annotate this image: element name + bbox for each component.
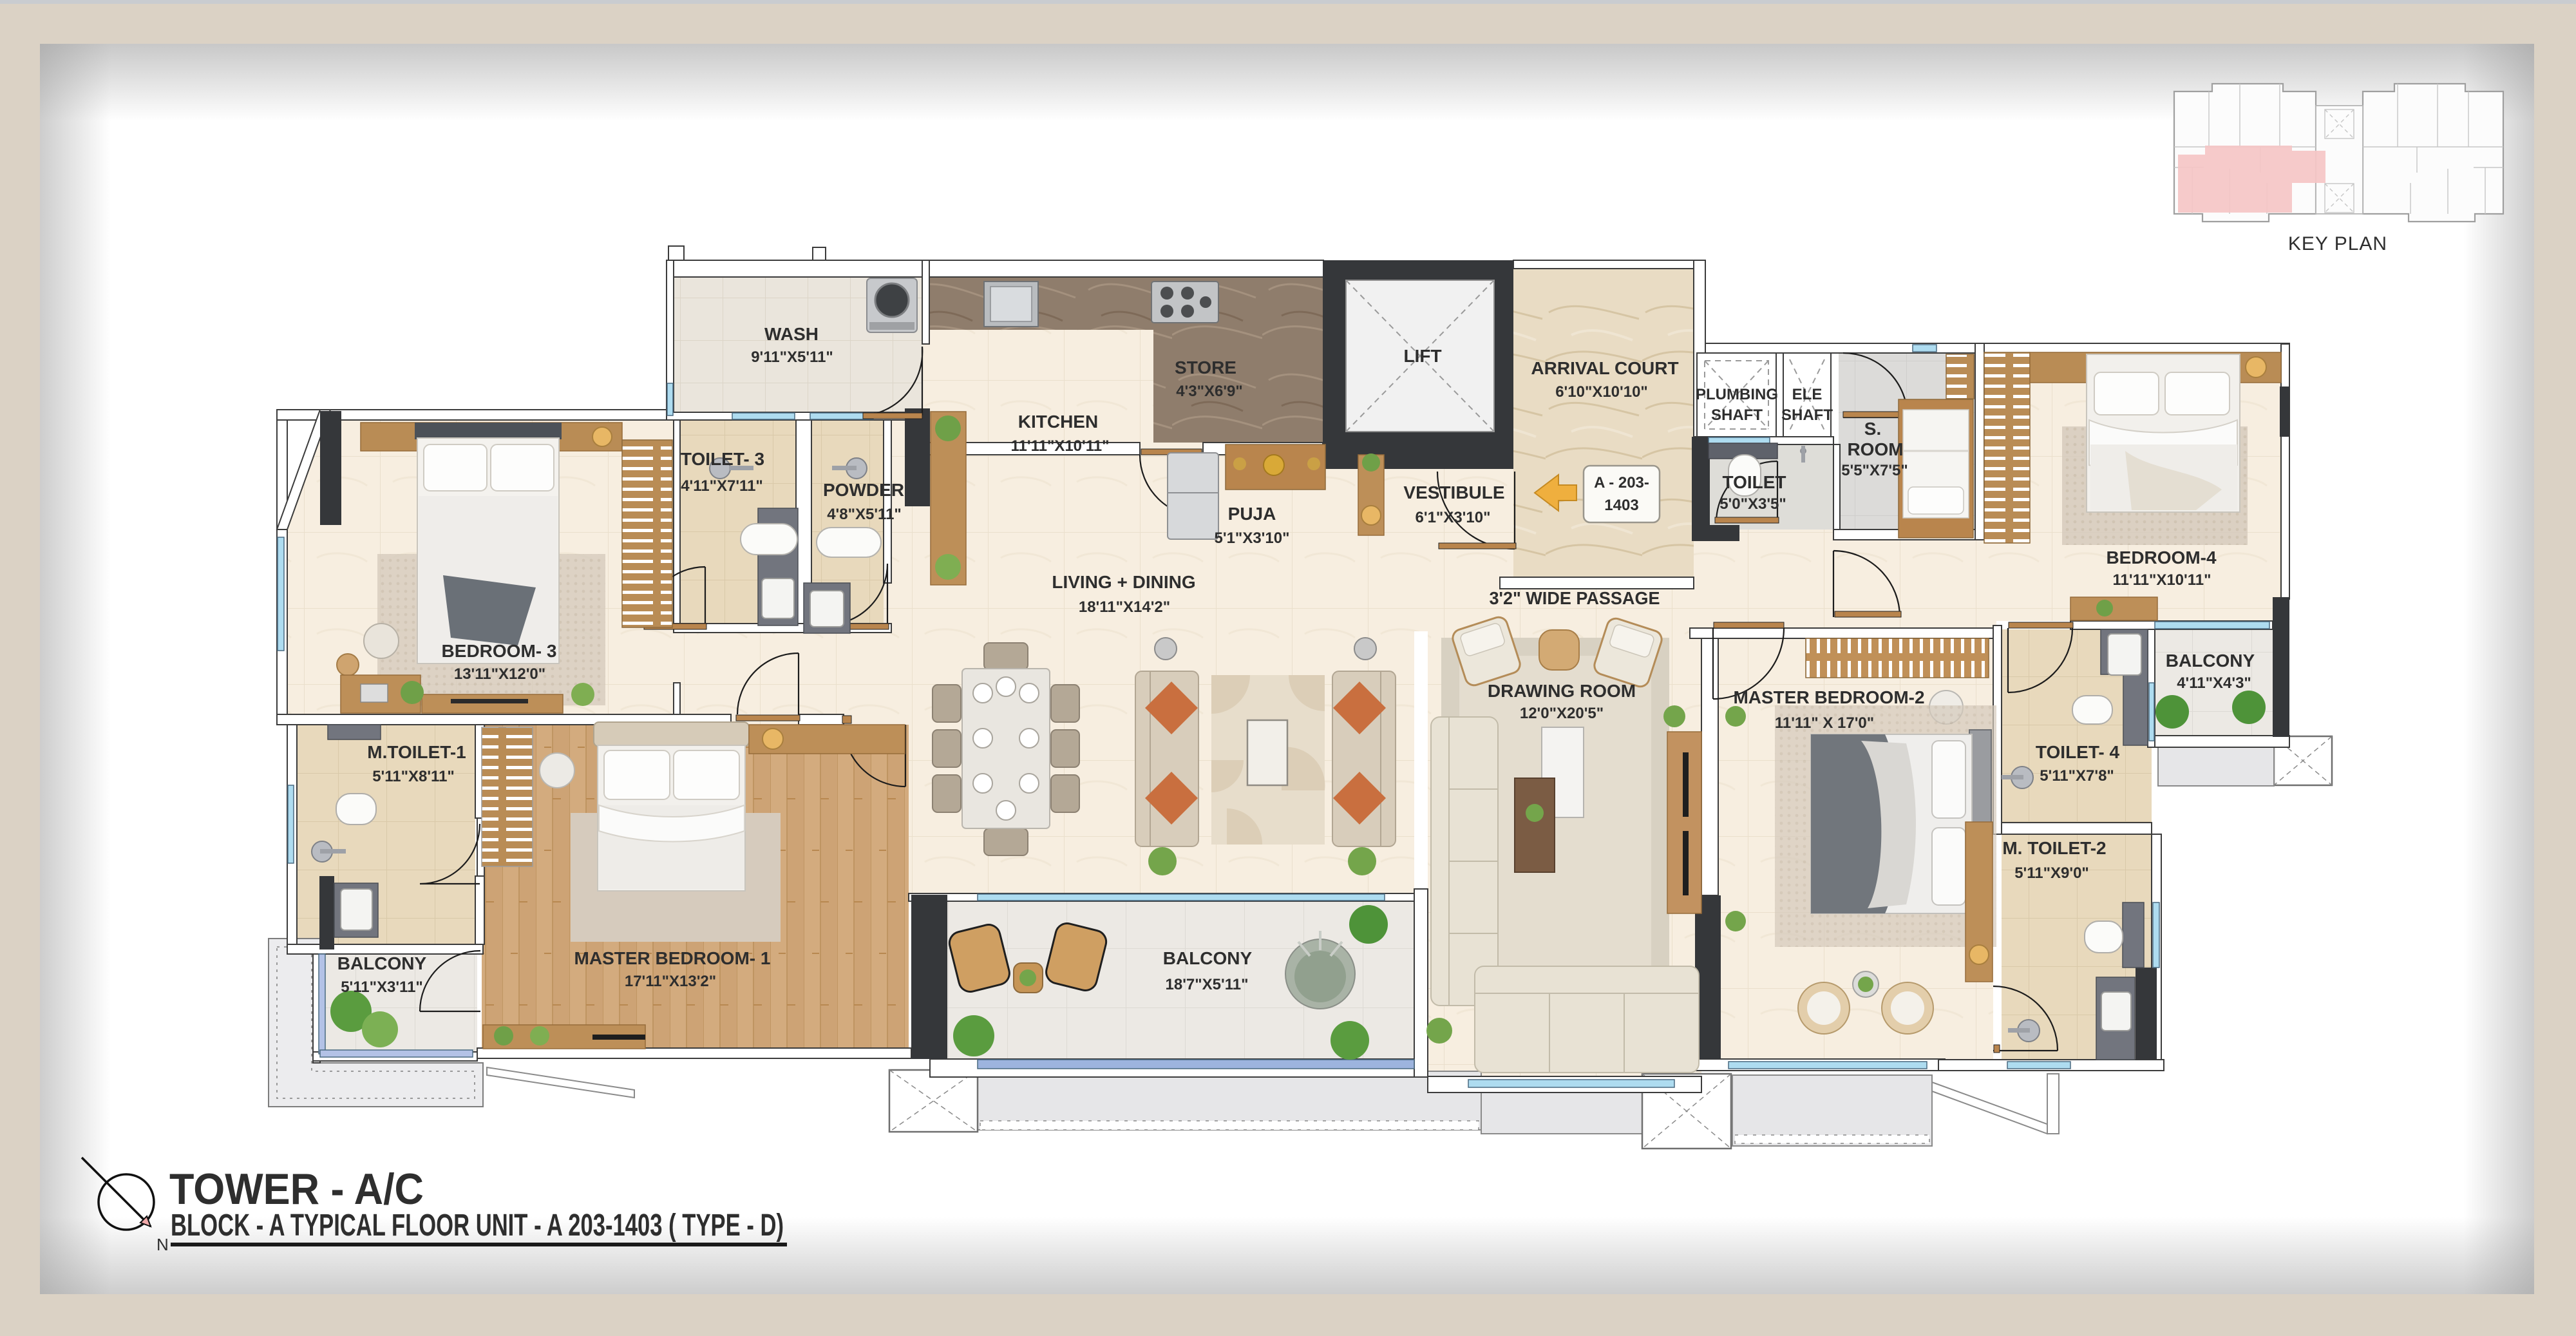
svg-text:9'11"X5'11": 9'11"X5'11" [751,348,833,366]
svg-text:11'11" X 17'0": 11'11" X 17'0" [1775,714,1874,732]
svg-text:5'11"X3'11": 5'11"X3'11" [341,978,423,996]
svg-text:MASTER BEDROOM-2: MASTER BEDROOM-2 [1733,687,1924,707]
svg-text:5'11"X9'0": 5'11"X9'0" [2014,864,2089,882]
svg-text:4'11"X7'11": 4'11"X7'11" [681,477,763,495]
svg-text:M.TOILET-1: M.TOILET-1 [367,742,466,762]
svg-text:13'11"X12'0": 13'11"X12'0" [454,665,545,683]
svg-text:WASH: WASH [764,324,819,344]
svg-text:KEY PLAN: KEY PLAN [2288,233,2387,254]
svg-text:ROOM: ROOM [1847,439,1903,459]
svg-text:A - 203-: A - 203- [1594,474,1649,491]
svg-text:18'7"X5'11": 18'7"X5'11" [1166,976,1249,993]
svg-text:6'10"X10'10": 6'10"X10'10" [1555,383,1648,401]
svg-text:LIFT: LIFT [1403,346,1441,366]
svg-text:1403: 1403 [1604,497,1638,514]
svg-text:BEDROOM- 3: BEDROOM- 3 [442,641,557,661]
svg-text:5'5"X7'5": 5'5"X7'5" [1841,462,1908,479]
svg-text:KITCHEN: KITCHEN [1018,412,1098,432]
svg-text:BLOCK - A TYPICAL FLOOR UNIT -: BLOCK - A TYPICAL FLOOR UNIT - A 203-140… [171,1208,784,1243]
svg-text:N: N [156,1235,169,1254]
svg-text:BALCONY: BALCONY [337,953,427,973]
svg-text:DRAWING ROOM: DRAWING ROOM [1488,681,1636,701]
svg-text:POWDER: POWDER [823,480,904,500]
svg-text:PLUMBING: PLUMBING [1696,386,1778,403]
svg-text:VESTIBULE: VESTIBULE [1403,482,1504,502]
svg-text:11'11"X10'11": 11'11"X10'11" [1011,437,1110,455]
svg-text:PUJA: PUJA [1228,504,1276,524]
svg-text:TOILET- 4: TOILET- 4 [2036,742,2120,762]
svg-text:5'0"X3'5": 5'0"X3'5" [1719,495,1786,513]
svg-text:MASTER BEDROOM- 1: MASTER BEDROOM- 1 [574,948,771,968]
svg-text:5'1"X3'10": 5'1"X3'10" [1215,530,1290,547]
svg-text:18'11"X14'2": 18'11"X14'2" [1079,598,1170,616]
svg-text:5'11"X7'8": 5'11"X7'8" [2040,767,2114,785]
svg-text:SHAFT: SHAFT [1711,406,1763,424]
svg-text:11'11"X10'11": 11'11"X10'11" [2113,571,2211,589]
svg-text:TOILET- 3: TOILET- 3 [681,449,764,469]
svg-text:LIVING + DINING: LIVING + DINING [1052,572,1195,592]
svg-text:TOWER - A/C: TOWER - A/C [169,1165,424,1214]
svg-text:S.: S. [1864,419,1881,439]
svg-text:4'3"X6'9": 4'3"X6'9" [1176,383,1243,400]
svg-text:SHAFT: SHAFT [1781,406,1833,424]
svg-text:M. TOILET-2: M. TOILET-2 [2002,838,2106,858]
svg-text:STORE: STORE [1175,358,1236,377]
svg-text:17'11"X13'2": 17'11"X13'2" [625,973,716,990]
svg-text:BALCONY: BALCONY [1163,948,1253,968]
svg-text:4'8"X5'11": 4'8"X5'11" [827,506,902,523]
svg-text:6'1"X3'10": 6'1"X3'10" [1416,509,1491,526]
svg-text:4'11"X4'3": 4'11"X4'3" [2177,674,2251,692]
svg-text:5'11"X8'11": 5'11"X8'11" [372,768,455,785]
svg-text:3'2" WIDE PASSAGE: 3'2" WIDE PASSAGE [1490,588,1660,608]
svg-text:BEDROOM-4: BEDROOM-4 [2106,548,2217,568]
svg-text:ELE: ELE [1792,386,1823,403]
svg-text:ARRIVAL COURT: ARRIVAL COURT [1531,358,1678,378]
svg-text:12'0"X20'5": 12'0"X20'5" [1520,705,1604,722]
svg-text:BALCONY: BALCONY [2166,651,2255,671]
svg-text:TOILET: TOILET [1722,472,1786,492]
